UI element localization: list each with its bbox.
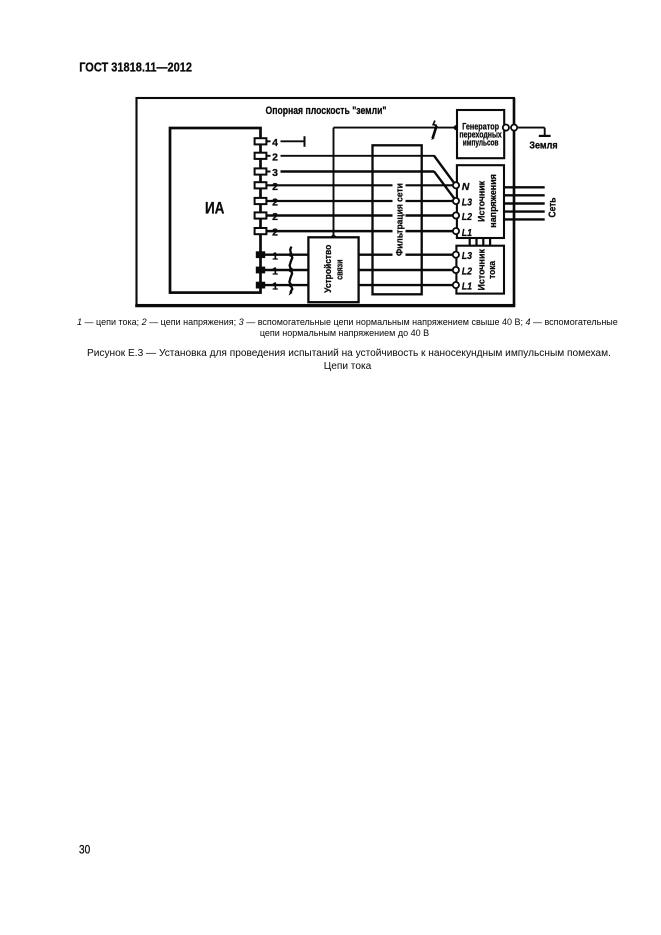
svg-text:1: 1 (272, 281, 278, 293)
svg-text:импульсов: импульсов (463, 138, 499, 148)
svg-text:L2: L2 (462, 211, 472, 223)
svg-text:3: 3 (272, 167, 278, 179)
svg-text:1: 1 (272, 266, 278, 278)
svg-text:2: 2 (272, 181, 278, 193)
svg-text:Фильтрация сети: Фильтрация сети (395, 183, 406, 256)
svg-text:L1: L1 (462, 281, 472, 293)
svg-text:2: 2 (272, 151, 278, 163)
svg-text:ГОСТ 31818.11—2012: ГОСТ 31818.11—2012 (79, 59, 192, 74)
svg-text:тока: тока (487, 260, 498, 279)
svg-text:L2: L2 (462, 266, 472, 278)
svg-text:2: 2 (272, 227, 278, 239)
svg-text:Источник: Источник (476, 181, 487, 222)
svg-text:связи: связи (334, 259, 345, 279)
svg-text:Опорная плоскость "земли": Опорная плоскость "земли" (266, 105, 387, 117)
svg-text:Земля: Земля (529, 139, 557, 151)
svg-text:напряжения: напряжения (488, 174, 499, 228)
svg-text:30: 30 (79, 843, 90, 857)
svg-text:N: N (462, 181, 470, 193)
svg-text:Сеть: Сеть (547, 197, 559, 217)
svg-text:1: 1 (272, 250, 278, 262)
svg-text:L1: L1 (462, 227, 472, 239)
svg-text:L3: L3 (462, 197, 472, 209)
svg-text:L3: L3 (462, 250, 472, 262)
svg-text:ИА: ИА (205, 199, 225, 217)
svg-text:Устройство: Устройство (323, 245, 334, 293)
svg-text:2: 2 (272, 197, 278, 209)
svg-text:4: 4 (272, 137, 278, 149)
svg-text:2: 2 (272, 211, 278, 223)
